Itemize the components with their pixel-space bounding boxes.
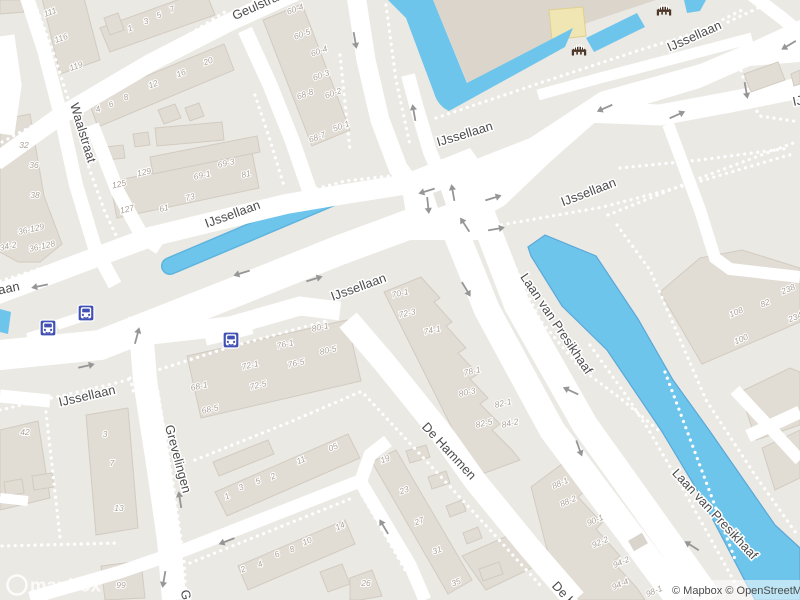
svg-text:7: 7	[110, 458, 115, 468]
svg-text:38: 38	[30, 190, 40, 200]
svg-text:99: 99	[116, 580, 126, 590]
svg-text:32: 32	[19, 140, 29, 150]
svg-text:36: 36	[29, 160, 39, 170]
svg-text:© Mapbox © OpenStreetMap: © Mapbox © OpenStreetMap	[672, 585, 800, 597]
svg-text:42: 42	[20, 427, 30, 437]
svg-text:13: 13	[114, 503, 124, 513]
svg-text:26: 26	[360, 578, 371, 588]
svg-text:mapbox: mapbox	[30, 575, 102, 596]
svg-text:3: 3	[103, 429, 108, 439]
